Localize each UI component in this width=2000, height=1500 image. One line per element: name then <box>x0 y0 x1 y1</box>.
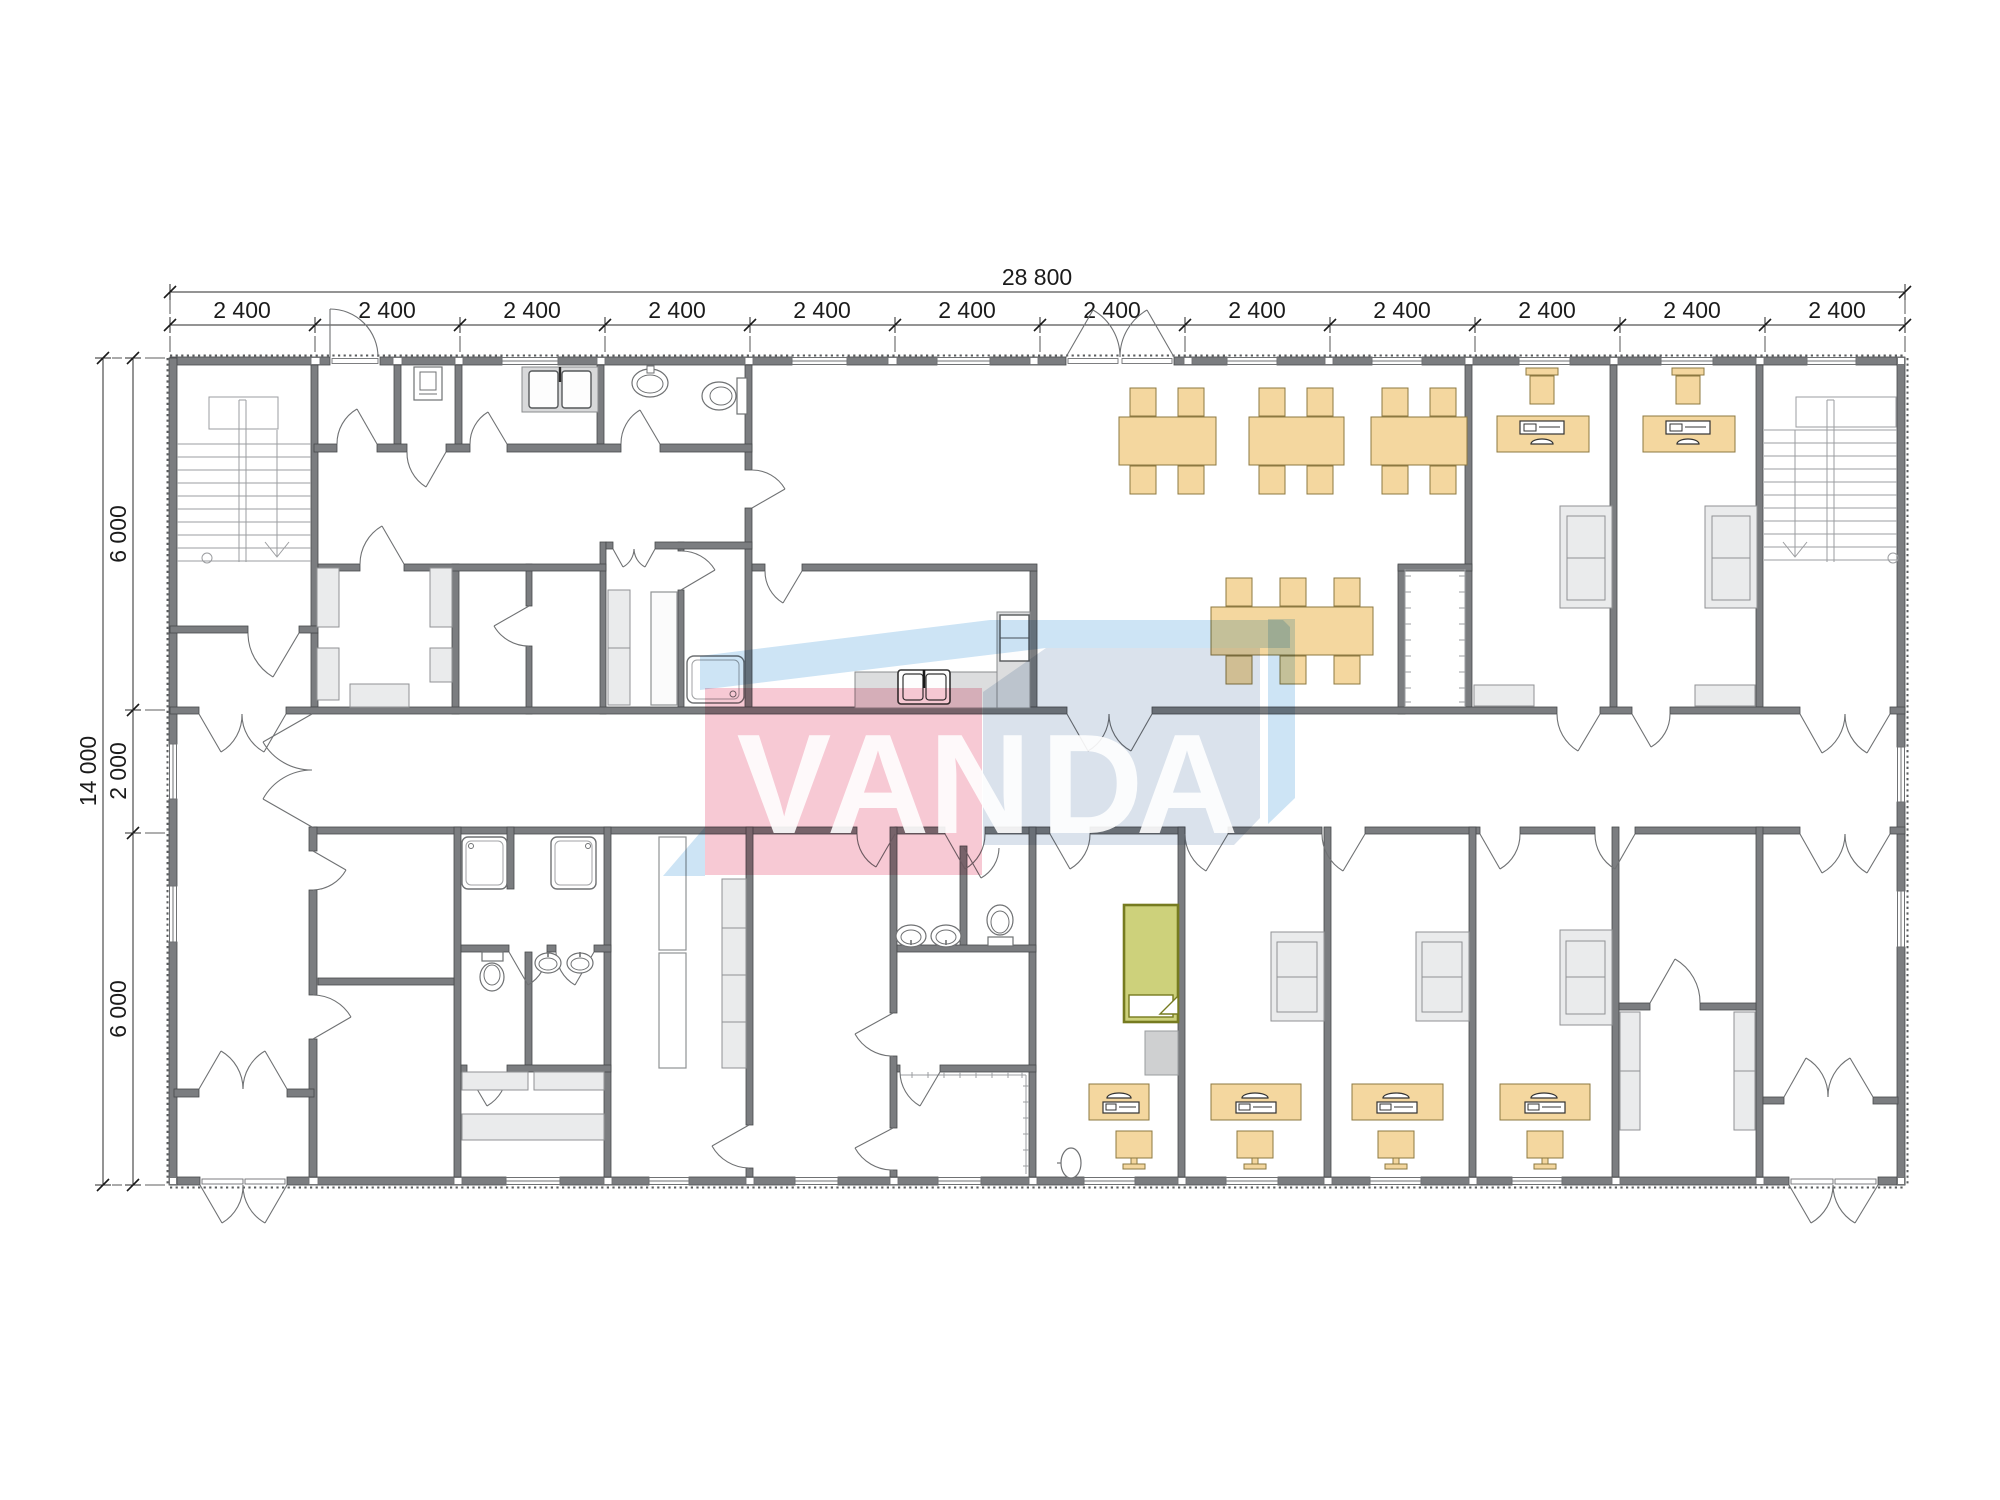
svg-text:2 400: 2 400 <box>1083 297 1141 323</box>
svg-text:A: A <box>827 705 930 864</box>
svg-text:N: N <box>929 705 1032 864</box>
svg-text:2 400: 2 400 <box>503 297 561 323</box>
svg-text:2 400: 2 400 <box>938 297 996 323</box>
svg-text:2 400: 2 400 <box>793 297 851 323</box>
svg-text:A: A <box>1136 705 1239 864</box>
svg-text:6 000: 6 000 <box>105 505 131 563</box>
svg-text:2 400: 2 400 <box>358 297 416 323</box>
svg-text:2 400: 2 400 <box>213 297 271 323</box>
svg-text:28 800: 28 800 <box>1002 264 1072 290</box>
svg-text:14 000: 14 000 <box>75 736 101 806</box>
svg-text:2 400: 2 400 <box>1228 297 1286 323</box>
svg-text:2 400: 2 400 <box>1373 297 1431 323</box>
svg-text:2 400: 2 400 <box>648 297 706 323</box>
svg-text:2 400: 2 400 <box>1808 297 1866 323</box>
svg-text:2 400: 2 400 <box>1663 297 1721 323</box>
svg-text:V: V <box>737 705 832 864</box>
svg-text:2 000: 2 000 <box>105 742 131 800</box>
svg-text:D: D <box>1041 705 1144 864</box>
svg-text:6 000: 6 000 <box>105 980 131 1038</box>
svg-text:2 400: 2 400 <box>1518 297 1576 323</box>
